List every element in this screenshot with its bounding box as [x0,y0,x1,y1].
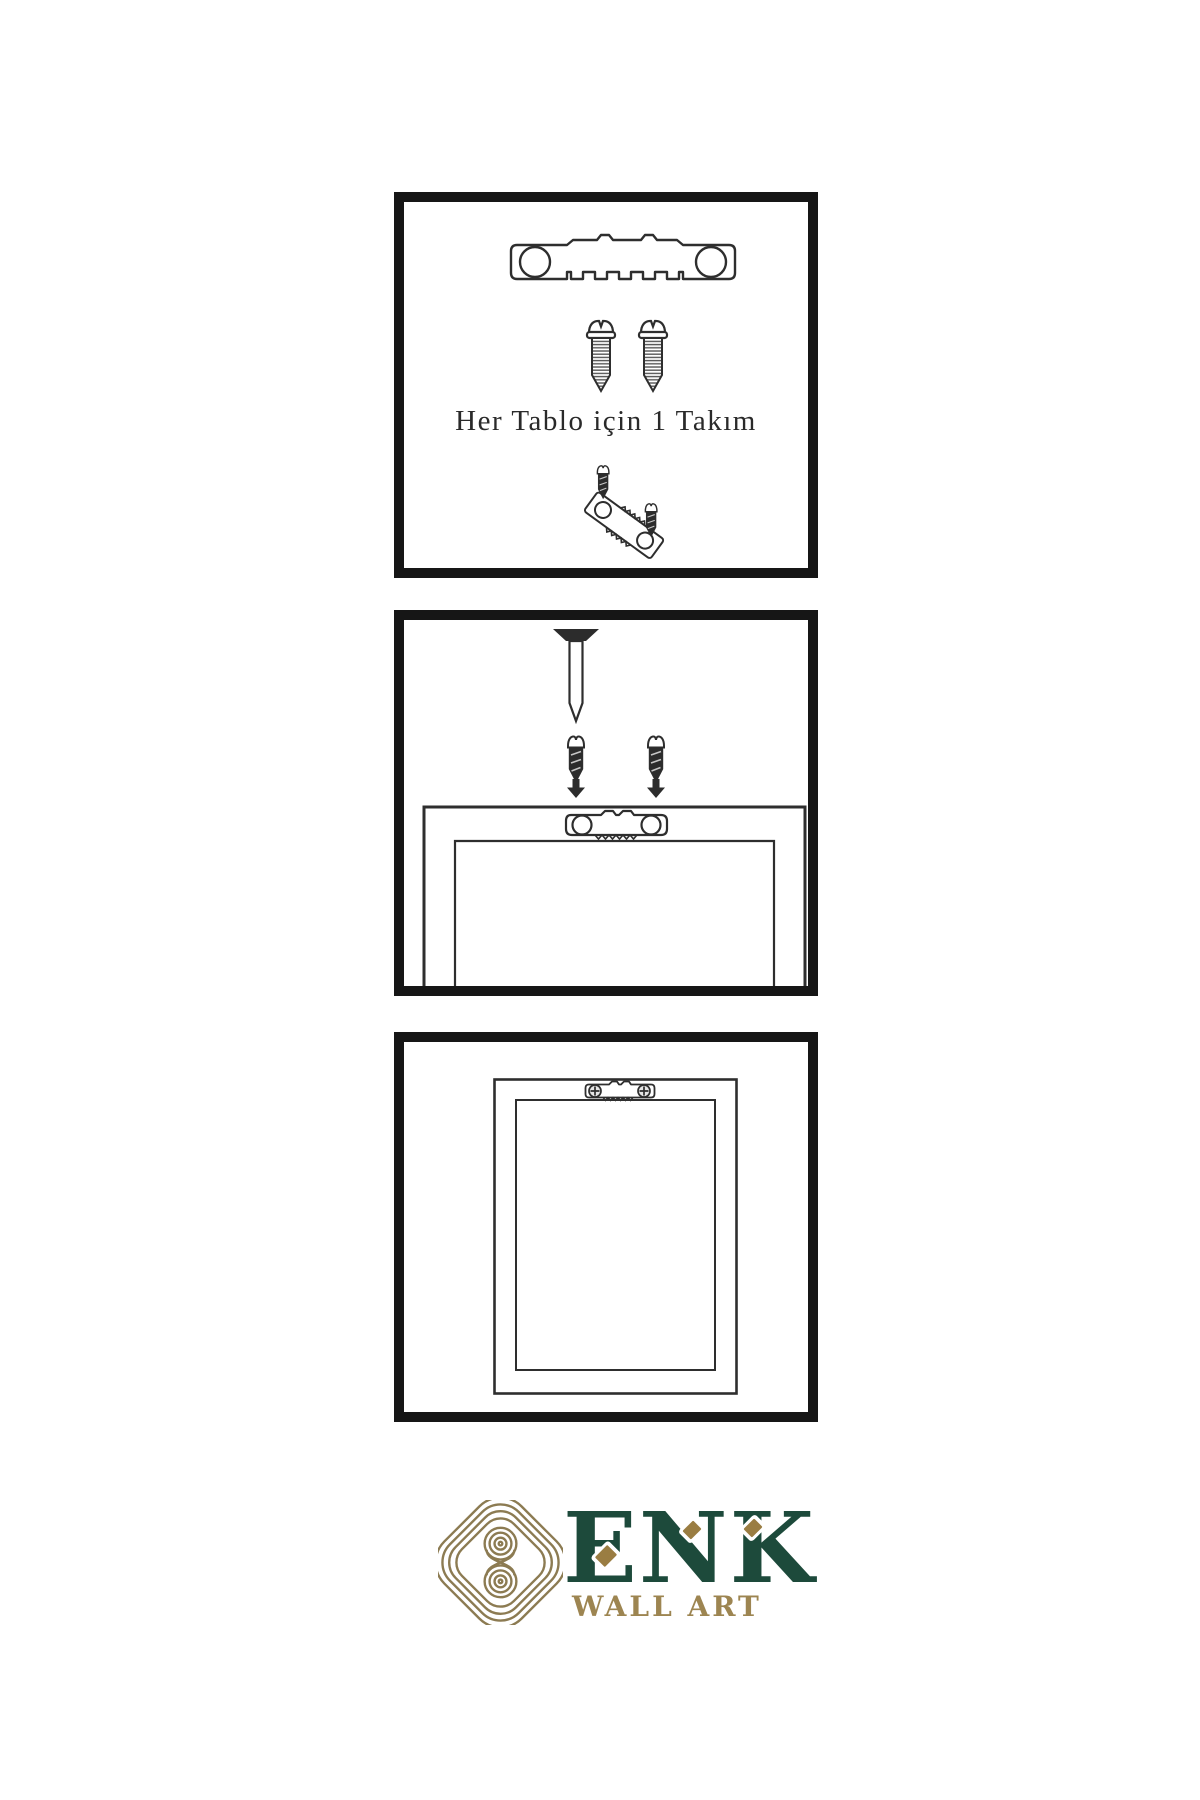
knot-logo-icon [438,1500,563,1625]
frame-back-icon [422,804,808,986]
hanger-assembly-icon [565,456,685,568]
sawtooth-hanger-icon [586,1082,655,1101]
dark-screw-icon [644,734,668,784]
panel-mounted-frame [394,1032,818,1422]
phillips-screw-icon [589,1085,601,1097]
sawtooth-hanger-icon [566,811,667,839]
brand-tagline: WALL ART [572,1593,762,1621]
nail-icon [552,629,600,729]
screw-icon [583,318,619,394]
phillips-screw-icon [638,1085,650,1097]
panel-wall-mounting [394,610,818,996]
arrow-down-icon [646,779,666,798]
instruction-sheet: Her Tablo için 1 Takım [0,0,1200,1800]
dark-screw-icon [564,734,588,784]
panel-hardware-kit: Her Tablo için 1 Takım [394,192,818,578]
sawtooth-hanger-icon [507,232,739,290]
picture-frame-icon [493,1078,738,1395]
arrow-down-icon [566,779,586,798]
screw-icon [635,318,671,394]
kit-caption: Her Tablo için 1 Takım [404,405,808,438]
brand-name: ENK [563,1500,816,1597]
